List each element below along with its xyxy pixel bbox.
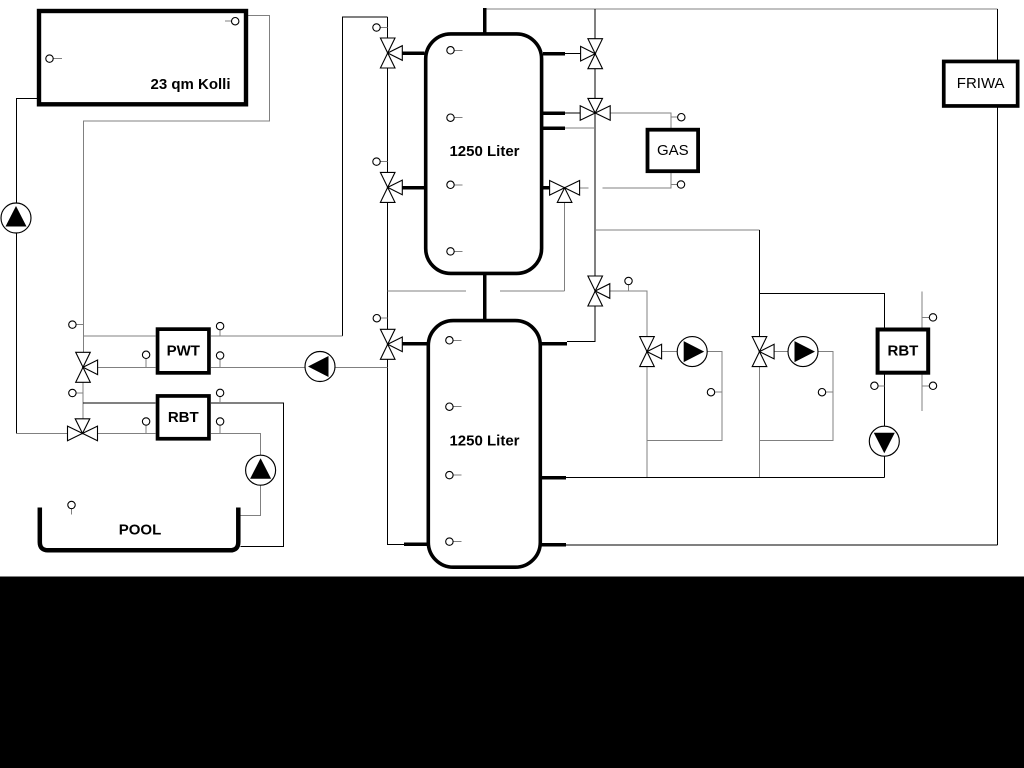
svg-text:23 qm Kolli: 23 qm Kolli: [150, 76, 230, 93]
svg-text:1250 Liter: 1250 Liter: [449, 143, 519, 160]
svg-text:GAS: GAS: [657, 142, 689, 159]
svg-text:PWT: PWT: [167, 343, 200, 360]
svg-text:FRIWA: FRIWA: [957, 75, 1005, 92]
svg-text:POOL: POOL: [119, 522, 162, 539]
svg-text:RBT: RBT: [887, 343, 918, 360]
svg-text:RBT: RBT: [168, 409, 199, 426]
svg-text:1250 Liter: 1250 Liter: [449, 433, 519, 450]
